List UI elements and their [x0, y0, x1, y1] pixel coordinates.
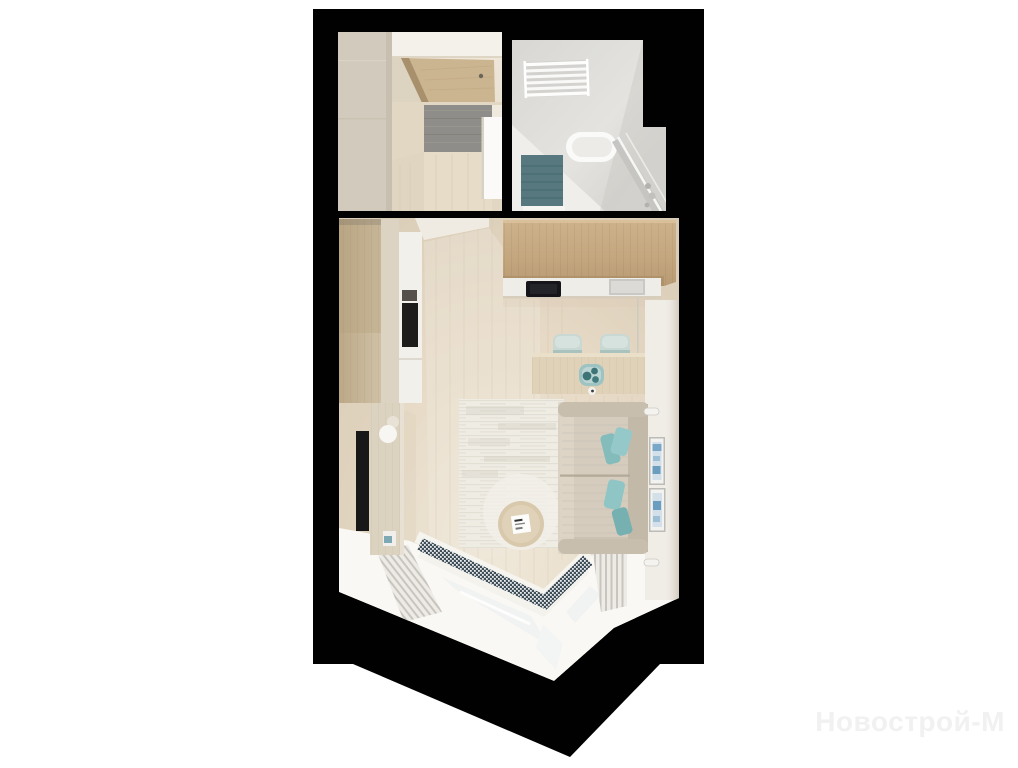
svg-text:Новострой-М: Новострой-М: [815, 706, 1005, 737]
